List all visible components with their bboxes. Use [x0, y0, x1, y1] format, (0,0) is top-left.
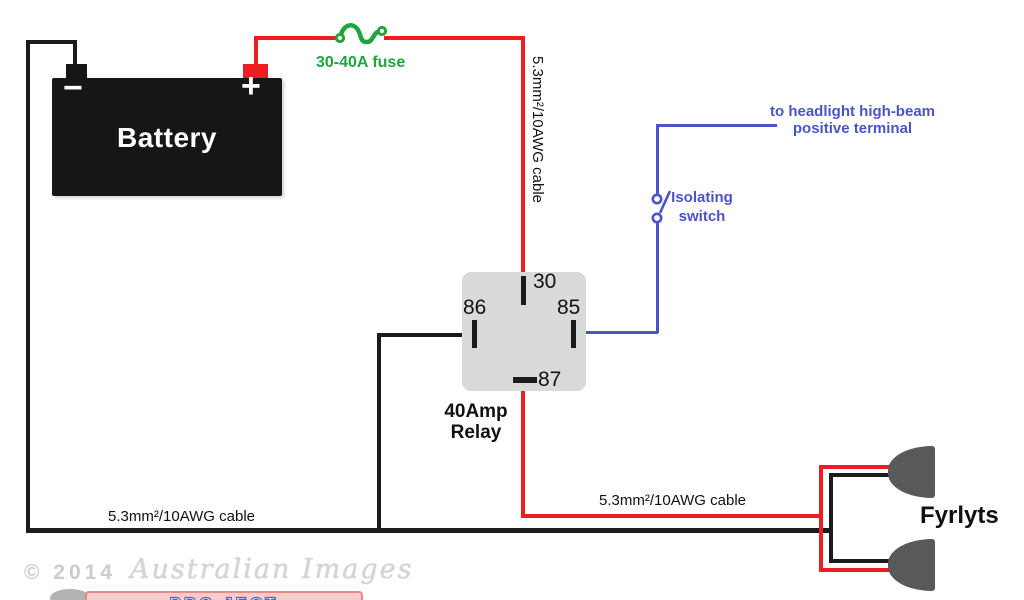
relay-to-lights-horizontal [521, 514, 823, 518]
driving-lamp-top [888, 446, 935, 498]
relay-terminal-85-label: 85 [557, 296, 580, 320]
wiring-diagram: − + Battery 30-40A fuse 30 86 85 87 40Am… [0, 0, 1024, 600]
cable-label-ground: 5.3mm²/10AWG cable [108, 508, 255, 525]
negative-terminal-stub [73, 40, 77, 66]
relay-terminal-30-pin [521, 276, 526, 305]
relay-name-label: 40Amp Relay [430, 401, 522, 443]
driving-lamp-bottom [888, 539, 935, 591]
headlight-note-line1: to headlight high-beam [755, 103, 950, 120]
relay-terminal-85-pin [571, 320, 576, 348]
cable-label-battery-to-relay: 5.3mm²/10AWG cable [529, 56, 546, 203]
watermark-logo-text: PRO JECT [85, 591, 363, 600]
negative-wire-left-vertical [26, 40, 30, 532]
battery-label: Battery [52, 122, 282, 154]
lamp-black-branch-top [829, 473, 889, 477]
relay-30-wire-vertical [521, 36, 525, 276]
battery-minus-sign: − [63, 71, 83, 105]
headlight-note-line2: positive terminal [755, 120, 950, 137]
headlight-note: to headlight high-beam positive terminal [755, 103, 950, 137]
fuse-symbol-icon [330, 20, 392, 48]
lamp-black-branch-bottom [829, 559, 889, 563]
fuse-label: 30-40A fuse [316, 54, 405, 72]
isolating-switch-label-line1: Isolating [666, 188, 738, 207]
fuse-to-relay-horizontal [384, 36, 525, 40]
relay-terminal-87-pin [513, 377, 537, 383]
negative-wire-top-horizontal [26, 40, 77, 44]
positive-terminal-stub [254, 37, 258, 65]
watermark-logo-image [50, 589, 90, 600]
switch-upper-wire-vertical [656, 124, 659, 195]
watermark-logo-strip: PRO JECT [85, 591, 363, 600]
watermark-brand: Australian Images [130, 554, 413, 585]
lamp-red-branch-top [819, 465, 889, 469]
battery-plus-sign: + [241, 69, 261, 103]
lamp-red-branch-bottom [819, 568, 889, 572]
lights-label: Fyrlyts [920, 502, 999, 530]
relay-name-line1: 40Amp [430, 401, 522, 422]
ground-wire-bottom-horizontal [26, 528, 833, 533]
relay-86-wire-horizontal [377, 333, 472, 337]
relay-terminal-87-label: 87 [538, 368, 561, 392]
relay-name-line2: Relay [430, 422, 522, 443]
switch-lower-wire-vertical [656, 221, 659, 333]
lamp-black-branch-vertical [829, 473, 833, 563]
lamp-red-branch-vertical [819, 465, 823, 572]
relay-terminal-86-label: 86 [463, 296, 486, 320]
isolating-switch-label: Isolating switch [666, 188, 738, 226]
watermark-copyright: © 2014 [24, 561, 116, 585]
relay-terminal-30-label: 30 [533, 270, 556, 294]
positive-wire-to-fuse [254, 36, 342, 40]
cable-label-relay-to-lights: 5.3mm²/10AWG cable [599, 492, 746, 509]
relay-terminal-86-pin [472, 320, 477, 348]
relay-86-wire-vertical [377, 333, 381, 528]
relay-85-wire-horizontal [575, 331, 658, 334]
isolating-switch-label-line2: switch [666, 207, 738, 226]
